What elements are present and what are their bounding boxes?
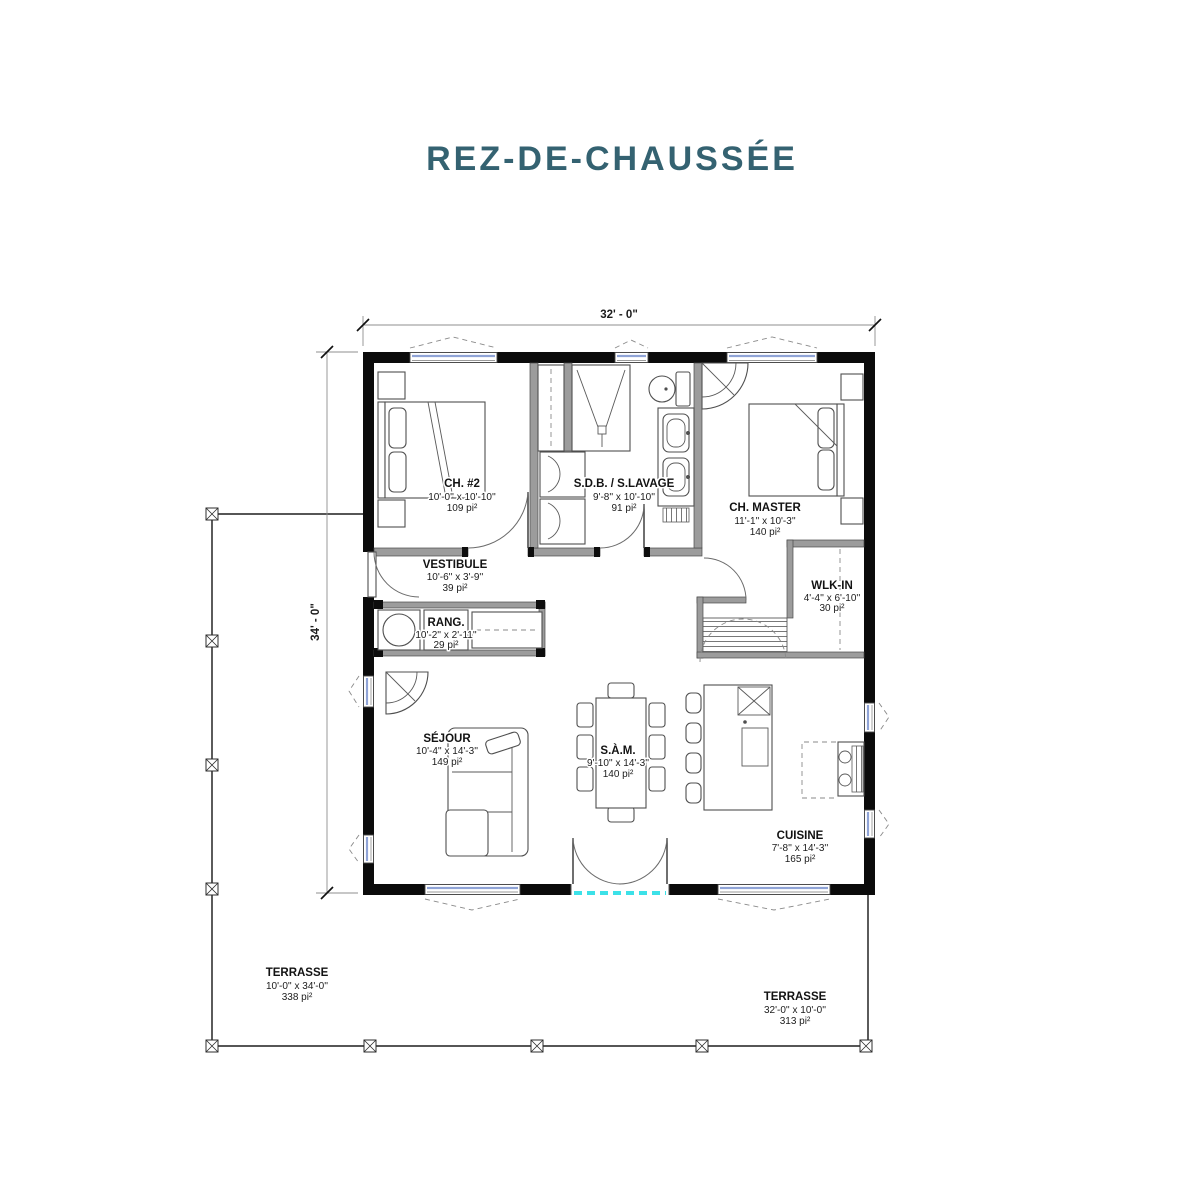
svg-text:109 pi²: 109 pi² (447, 503, 478, 514)
window-master-icon (727, 337, 817, 363)
dimension-top: 32' - 0" (357, 309, 881, 346)
toilet-icon (649, 372, 690, 406)
linen-cabinet-icon (663, 508, 689, 522)
svg-text:11'-1'' x 10'-3'': 11'-1'' x 10'-3'' (734, 516, 795, 527)
vanity-double-sink-icon (658, 408, 694, 522)
svg-text:SÉJOUR: SÉJOUR (423, 732, 471, 745)
floor-plan-drawing: REZ-DE-CHAUSSÉE 32' - 0" 34' - 0" (0, 0, 1201, 1201)
terrace-label-right: TERRASSE 32'-0'' x 10'-0'' 313 pi² (764, 991, 827, 1027)
svg-text:CH. #2: CH. #2 (444, 478, 480, 490)
window-ch2-icon (410, 337, 497, 363)
range-icon (838, 742, 864, 796)
window-cuisine-bottom-icon (718, 885, 830, 911)
kitchen-fixtures (686, 685, 864, 810)
corner-fireplace-icon (386, 672, 428, 714)
dimension-top-label: 32' - 0" (600, 309, 638, 321)
window-bath-icon (615, 340, 648, 363)
nightstand-icon (378, 372, 405, 399)
svg-text:10'-4'' x 14'-3'': 10'-4'' x 14'-3'' (416, 746, 478, 757)
room-label-cuisine: CUISINE 7'-8'' x 14'-3'' 165 pi² (772, 830, 829, 865)
window-sejour-bottom-icon (425, 885, 520, 911)
stool-icon (686, 783, 701, 803)
dimension-left-label: 34' - 0" (310, 603, 322, 641)
window-sejour-left2-icon (349, 835, 374, 863)
room-label-vestibule: VESTIBULE 10'-6'' x 3'-9'' 39 pi² (423, 559, 488, 594)
svg-text:30 pi²: 30 pi² (819, 603, 845, 614)
svg-text:CUISINE: CUISINE (777, 830, 824, 842)
svg-text:S.À.M.: S.À.M. (600, 744, 635, 757)
water-heater-icon (383, 614, 415, 646)
svg-text:165 pi²: 165 pi² (785, 854, 816, 865)
svg-text:TERRASSE: TERRASSE (266, 967, 329, 979)
svg-text:338 pi²: 338 pi² (282, 992, 313, 1003)
stool-icon (686, 693, 701, 713)
page-title: REZ-DE-CHAUSSÉE (426, 140, 798, 178)
chair-icon (577, 767, 593, 791)
svg-text:RANG.: RANG. (427, 617, 464, 629)
shower-icon (572, 365, 630, 451)
room-label-master: CH. MASTER 11'-1'' x 10'-3'' 140 pi² (729, 502, 801, 538)
bed-icon (749, 404, 844, 496)
window-sejour-left1-icon (349, 676, 374, 707)
floor-plan-page: REZ-DE-CHAUSSÉE 32' - 0" 34' - 0" (0, 0, 1201, 1201)
window-cuisine-right1-icon (865, 703, 890, 732)
nightstand-icon (841, 498, 863, 524)
svg-text:10'-6'' x 3'-9'': 10'-6'' x 3'-9'' (427, 572, 484, 583)
dimension-left: 34' - 0" (310, 346, 358, 899)
room-label-wlkin: WLK-IN 4'-4'' x 6'-10'' 30 pi² (804, 580, 861, 614)
master-door-icon (704, 558, 746, 600)
svg-text:91 pi²: 91 pi² (611, 503, 637, 514)
window-cuisine-right2-icon (865, 810, 890, 838)
terrace-label-left: TERRASSE 10'-0'' x 34'-0'' 338 pi² (266, 967, 329, 1003)
counter-dashed-line (802, 742, 836, 798)
svg-text:7'-8'' x 14'-3'': 7'-8'' x 14'-3'' (772, 843, 829, 854)
svg-text:9'-10'' x 14'-3'': 9'-10'' x 14'-3'' (587, 758, 649, 769)
stool-icon (686, 723, 701, 743)
svg-text:10'-0'' x 34'-0'': 10'-0'' x 34'-0'' (266, 981, 328, 992)
svg-text:140 pi²: 140 pi² (750, 527, 781, 538)
svg-text:S.D.B. / S.LAVAGE: S.D.B. / S.LAVAGE (574, 478, 675, 490)
svg-text:39 pi²: 39 pi² (442, 583, 468, 594)
svg-text:9'-8'' x 10'-10'': 9'-8'' x 10'-10'' (593, 492, 655, 503)
chair-icon (649, 735, 665, 759)
svg-text:VESTIBULE: VESTIBULE (423, 559, 488, 571)
chair-icon (649, 703, 665, 727)
svg-text:TERRASSE: TERRASSE (764, 991, 827, 1003)
washer-dryer-icon (540, 452, 585, 544)
svg-text:149 pi²: 149 pi² (432, 757, 463, 768)
svg-text:140 pi²: 140 pi² (603, 769, 634, 780)
chair-icon (577, 735, 593, 759)
svg-text:CH. MASTER: CH. MASTER (729, 502, 801, 514)
svg-text:29 pi²: 29 pi² (433, 640, 459, 651)
stool-icon (686, 753, 701, 773)
svg-text:WLK-IN: WLK-IN (811, 580, 853, 592)
nightstand-icon (378, 500, 405, 527)
closet-icon (538, 365, 564, 451)
entry-door-icon (363, 552, 419, 597)
patio-door-icon (571, 838, 669, 895)
corner-tub-icon (702, 363, 748, 409)
nightstand-icon (841, 374, 863, 400)
svg-text:10'-0'' x 10'-10'': 10'-0'' x 10'-10'' (428, 492, 496, 503)
chair-icon (577, 703, 593, 727)
chair-icon (608, 807, 634, 822)
svg-text:313 pi²: 313 pi² (780, 1016, 811, 1027)
chair-icon (649, 767, 665, 791)
svg-text:32'-0'' x 10'-0'': 32'-0'' x 10'-0'' (764, 1005, 826, 1016)
kitchen-island-icon (704, 685, 772, 810)
chair-icon (608, 683, 634, 698)
